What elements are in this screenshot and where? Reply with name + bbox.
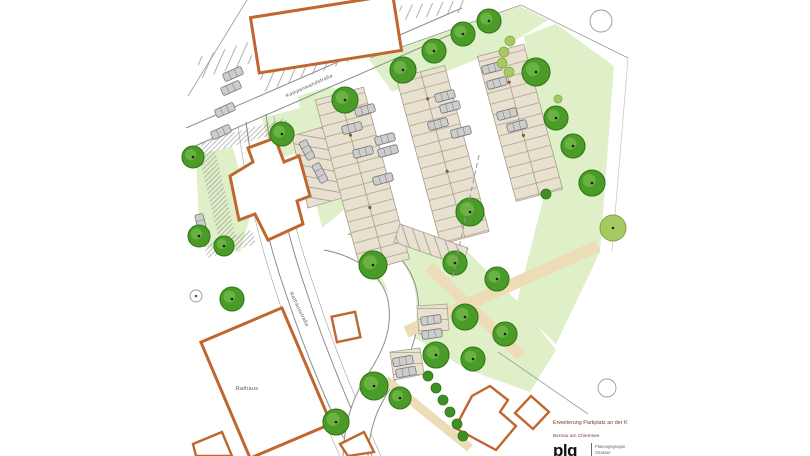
bush-symbol xyxy=(458,431,468,441)
firm-name-line1: Planungsgruppe xyxy=(595,444,626,449)
manhole-circle xyxy=(590,10,612,32)
tree-symbol xyxy=(477,9,501,33)
tree-symbol xyxy=(270,122,294,146)
tree-light-symbol xyxy=(600,215,626,241)
tree-symbol xyxy=(456,198,484,226)
site-plan-svg: Kampenwandstraße Rathausstraße Rathaus E… xyxy=(0,0,810,456)
building-bottom-right-diamond xyxy=(515,396,549,429)
tree-symbol xyxy=(214,236,234,256)
bush-symbol xyxy=(423,371,433,381)
existing-stall-comb xyxy=(398,0,468,20)
tree-symbol xyxy=(423,342,449,368)
bush-symbol xyxy=(504,67,514,77)
tree-symbol xyxy=(443,251,467,275)
tree-symbol xyxy=(360,372,388,400)
bush-symbol xyxy=(438,395,448,405)
tree-symbol xyxy=(188,225,210,247)
tree-symbol xyxy=(461,347,485,371)
bush-symbol xyxy=(452,419,462,429)
tree-symbol xyxy=(332,87,358,113)
plan-title: Erweiterung Parkplatz an der K xyxy=(553,420,628,426)
manhole-circle xyxy=(598,379,616,397)
tree-symbol xyxy=(493,322,517,346)
bush-symbol xyxy=(541,189,551,199)
plg-logo: plg xyxy=(553,441,577,456)
bush-symbol xyxy=(505,36,515,46)
tree-symbol xyxy=(323,409,349,435)
manhole-dot xyxy=(195,295,198,298)
car-symbol xyxy=(377,144,398,157)
tree-symbol xyxy=(452,304,478,330)
tree-symbol xyxy=(220,287,244,311)
car-symbol xyxy=(220,80,242,96)
plan-subtitle: Bernau am Chiemsee xyxy=(553,433,600,439)
firm-name-line2: Strasser xyxy=(595,450,611,455)
tree-symbol xyxy=(522,58,550,86)
building-label-rathaus: Rathaus xyxy=(236,386,259,392)
tree-symbol xyxy=(389,387,411,409)
tree-symbol xyxy=(485,267,509,291)
car-symbol xyxy=(214,102,236,118)
tree-symbol xyxy=(390,57,416,83)
tree-symbol xyxy=(579,170,605,196)
title-block: Erweiterung Parkplatz an der K Bernau am… xyxy=(553,420,628,456)
site-plan-canvas: Kampenwandstraße Rathausstraße Rathaus E… xyxy=(0,0,810,456)
building-small-square xyxy=(332,312,361,342)
tree-symbol xyxy=(544,106,568,130)
tree-symbol xyxy=(182,146,204,168)
building-corner-sw xyxy=(193,432,232,456)
tree-symbol xyxy=(359,251,387,279)
bush-symbol xyxy=(499,47,509,57)
bush-symbol xyxy=(497,58,507,68)
tree-symbol xyxy=(422,39,446,63)
bush-symbol xyxy=(431,383,441,393)
bush-symbol xyxy=(554,95,562,103)
bush-symbol xyxy=(445,407,455,417)
tree-symbol xyxy=(561,134,585,158)
car-symbol xyxy=(374,132,395,145)
tree-symbol xyxy=(451,22,475,46)
